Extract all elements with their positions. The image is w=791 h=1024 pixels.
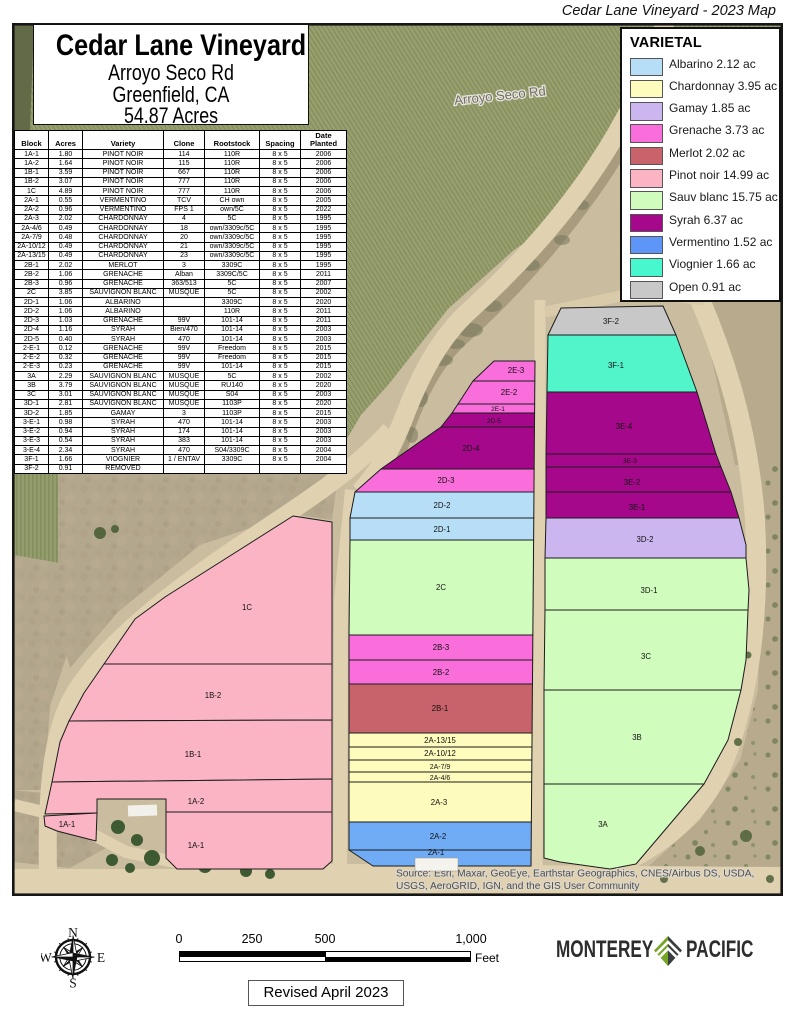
svg-text:3E-1: 3E-1: [629, 503, 645, 512]
svg-text:1A-1: 1A-1: [59, 820, 75, 829]
svg-text:2A-7/9: 2A-7/9: [430, 764, 451, 771]
svg-text:3E-3: 3E-3: [623, 458, 637, 465]
svg-text:2E-2: 2E-2: [501, 388, 517, 397]
svg-text:1B-2: 1B-2: [205, 691, 221, 700]
svg-text:2E-1: 2E-1: [491, 406, 505, 413]
svg-text:1B-1: 1B-1: [185, 750, 201, 759]
svg-text:3E-4: 3E-4: [616, 422, 633, 431]
svg-text:2A-10/12: 2A-10/12: [424, 749, 456, 758]
svg-text:USGS, AeroGRID, IGN, and the G: USGS, AeroGRID, IGN, and the GIS User Co…: [396, 881, 640, 892]
svg-text:1C: 1C: [242, 603, 252, 612]
svg-text:3D-1: 3D-1: [641, 586, 658, 595]
svg-text:3C: 3C: [641, 652, 651, 661]
svg-text:2A-3: 2A-3: [431, 798, 447, 807]
svg-text:2A-1: 2A-1: [428, 848, 444, 857]
svg-text:2E-3: 2E-3: [508, 366, 524, 375]
svg-text:2D-2: 2D-2: [434, 501, 451, 510]
svg-text:2A-4/6: 2A-4/6: [430, 775, 451, 782]
svg-text:2D-3: 2D-3: [438, 476, 455, 485]
svg-text:2B-2: 2B-2: [433, 668, 449, 677]
svg-text:3A: 3A: [598, 820, 608, 829]
svg-text:2A-13/15: 2A-13/15: [424, 736, 456, 745]
svg-text:S: S: [69, 976, 77, 991]
svg-text:2D-1: 2D-1: [434, 525, 451, 534]
svg-text:3D-2: 3D-2: [637, 535, 654, 544]
svg-text:3B: 3B: [632, 733, 642, 742]
svg-text:1A-1: 1A-1: [188, 841, 204, 850]
svg-text:2A-2: 2A-2: [430, 832, 446, 841]
svg-text:3F-2: 3F-2: [603, 317, 619, 326]
svg-text:2B-3: 2B-3: [433, 643, 449, 652]
svg-text:3F-1: 3F-1: [608, 361, 624, 370]
svg-text:N: N: [68, 925, 78, 940]
svg-text:3E-2: 3E-2: [624, 478, 640, 487]
svg-text:W: W: [41, 950, 52, 965]
svg-text:2D-5: 2D-5: [487, 418, 501, 425]
svg-text:2D-4: 2D-4: [463, 444, 481, 453]
svg-text:2C: 2C: [436, 583, 446, 592]
svg-text:E: E: [97, 950, 105, 965]
svg-text:1A-2: 1A-2: [188, 797, 204, 806]
svg-text:2B-1: 2B-1: [432, 704, 448, 713]
